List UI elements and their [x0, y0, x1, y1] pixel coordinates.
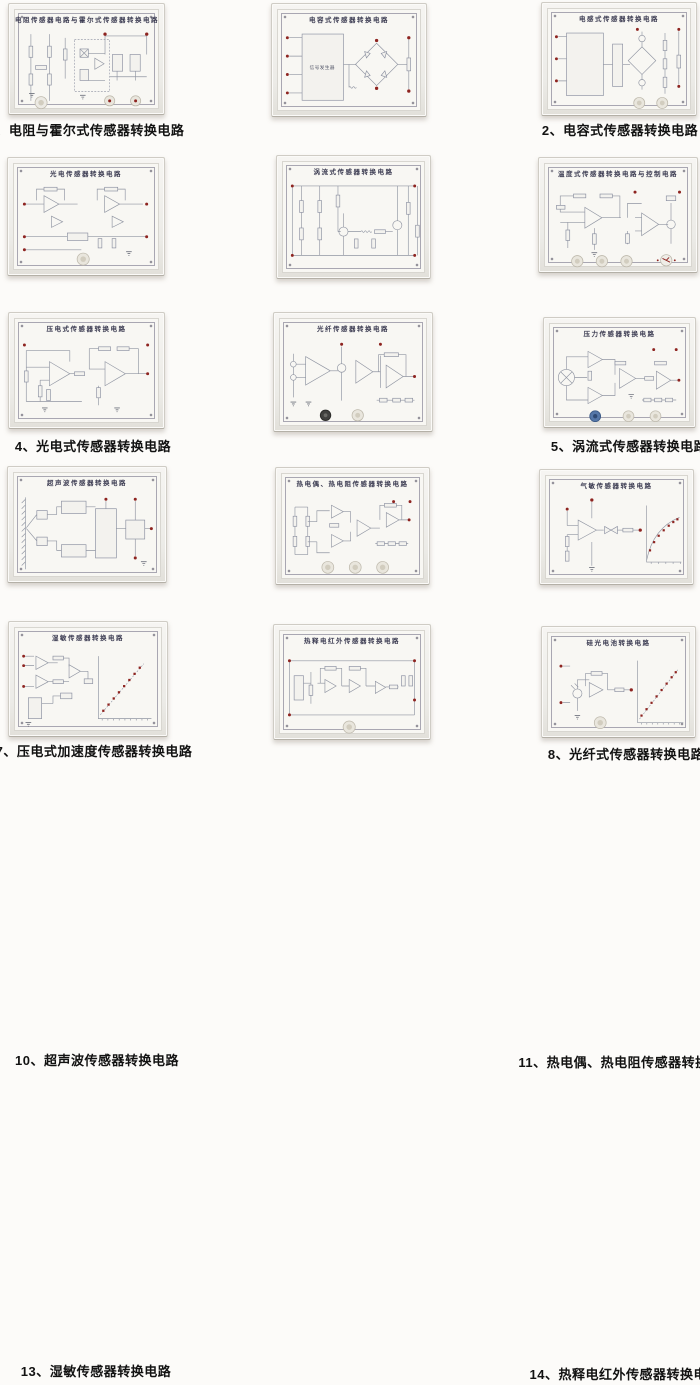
catalog-item-1: 电阻传感器电路与霍尔式传感器转换电路 1、电阻	[8, 3, 165, 115]
catalog-item-10: 超声波传感器转换电路 10、超声波传感器转换电路	[7, 466, 167, 583]
characteristic-line-graph	[638, 661, 684, 725]
knob	[621, 256, 632, 267]
item-caption-7: 7、压电式加速度传感器转换电路	[0, 741, 192, 760]
item-caption-4: 4、光电式传感器转换电路	[15, 436, 171, 455]
circuit-diagram-photoelectric	[16, 177, 156, 270]
circuit-panel-12: 气敏传感器转换电路	[539, 469, 694, 585]
indicator-meter	[657, 255, 676, 266]
circuit-diagram-gas-sensor	[548, 489, 685, 580]
characteristic-line-graph	[98, 656, 151, 720]
circuit-diagram-silicon-photocell	[550, 646, 687, 737]
circuit-panel-7: 压电式传感器转换电路	[8, 312, 165, 429]
item-caption-14: 14、热释电红外传感器转换电路	[530, 1364, 700, 1383]
knob	[77, 253, 89, 265]
knob	[377, 561, 389, 573]
circuit-panel-2: 电容式传感器转换电路 信号发生器	[271, 3, 427, 117]
catalog-item-12: 气敏传感器转换电路	[539, 469, 694, 585]
knob	[657, 97, 668, 108]
knob	[623, 411, 634, 422]
knob-dark	[320, 410, 330, 420]
item-caption-5: 5、涡流式传感器转换电路	[551, 436, 700, 455]
knob	[596, 256, 607, 267]
catalog-item-2: 电容式传感器转换电路 信号发生器 2、电容式传感器转换电路	[271, 3, 427, 117]
circuit-panel-4: 光电传感器转换电路	[7, 157, 165, 276]
item-caption-8: 8、光纤式传感器转换电路	[548, 744, 700, 763]
characteristic-curve-graph	[647, 505, 682, 563]
circuit-diagram-capacitive: 信号发生器	[280, 23, 418, 115]
circuit-panel-11: 热电偶、热电阻传感器转换电路	[275, 467, 430, 585]
circuit-panel-1: 电阻传感器电路与霍尔式传感器转换电路	[8, 3, 165, 115]
circuit-diagram-inductive	[550, 22, 688, 114]
item-caption-10: 10、超声波传感器转换电路	[15, 1050, 179, 1069]
circuit-diagram-resistor-hall	[17, 23, 156, 116]
circuit-panel-10: 超声波传感器转换电路	[7, 466, 167, 583]
knob	[594, 717, 606, 729]
circuit-diagram-thermocouple	[284, 487, 421, 578]
circuit-diagram-temperature	[547, 177, 689, 272]
circuit-panel-8: 光纤传感器转换电路	[273, 312, 433, 432]
circuit-diagram-pyroelectric	[282, 644, 422, 737]
catalog-item-8: 光纤传感器转换电路 8、光纤式传感器转换电路	[273, 312, 433, 432]
knob-blue	[590, 411, 601, 422]
item-caption-11: 11、热电偶、热电阻传感器转换电路	[518, 1052, 700, 1071]
catalog-item-13: 湿敏传感器转换电路	[8, 621, 168, 737]
catalog-item-5: 涡流式传感器转换电路 5、涡流式传感器转换电路	[276, 155, 431, 279]
circuit-diagram-fiber-optic	[282, 332, 424, 427]
catalog-item-7: 压电式传感器转换电路 7、压电式加速度传感器转换电路	[8, 312, 165, 429]
knob	[105, 96, 115, 106]
knob	[343, 721, 355, 733]
catalog-item-6: 温度式传感器转换电路与控制电路	[538, 157, 698, 273]
item-caption-1: 1、电阻与霍尔式传感器转换电路	[0, 120, 184, 139]
knob	[352, 410, 363, 421]
circuit-diagram-pressure	[552, 337, 687, 427]
knob	[634, 97, 645, 108]
catalog-item-15: 硅光电池转换电路	[541, 626, 696, 738]
circuit-diagram-eddy-current	[285, 175, 422, 266]
knob	[650, 411, 661, 422]
knob	[322, 561, 334, 573]
circuit-panel-3: 电感式传感器转换电路	[541, 2, 697, 116]
circuit-panel-6: 温度式传感器转换电路与控制电路	[538, 157, 698, 273]
block-label: 信号发生器	[310, 64, 335, 71]
catalog-item-9: 压力传感器转换电路	[543, 317, 696, 428]
catalog-item-11: 热电偶、热电阻传感器转换电路	[275, 467, 430, 585]
circuit-diagram-humidity	[17, 641, 159, 736]
circuit-panel-15: 硅光电池转换电路	[541, 626, 696, 738]
knob	[572, 256, 583, 267]
knob	[349, 561, 361, 573]
circuit-diagram-ultrasonic	[16, 486, 158, 581]
knob	[35, 97, 47, 109]
item-caption-13: 13、湿敏传感器转换电路	[21, 1361, 171, 1380]
circuit-diagram-piezoelectric	[17, 332, 156, 425]
circuit-panel-13: 湿敏传感器转换电路	[8, 621, 168, 737]
item-caption-2: 2、电容式传感器转换电路	[542, 120, 698, 139]
knob	[131, 96, 141, 106]
catalog-item-4: 光电传感器转换电路 4、光电式传感器转换电路	[7, 157, 165, 276]
circuit-panel-5: 涡流式传感器转换电路	[276, 155, 431, 279]
catalog-item-14: 热释电红外传感器转换电路 14、热释电红外传感	[273, 624, 431, 740]
catalog-item-3: 电感式传感器转换电路 3、电感式传感器转换电路	[541, 2, 697, 116]
circuit-panel-14: 热释电红外传感器转换电路	[273, 624, 431, 740]
catalog-page: { "catalog": { "items": [ {"caption": "1…	[0, 0, 700, 756]
circuit-panel-9: 压力传感器转换电路	[543, 317, 696, 428]
